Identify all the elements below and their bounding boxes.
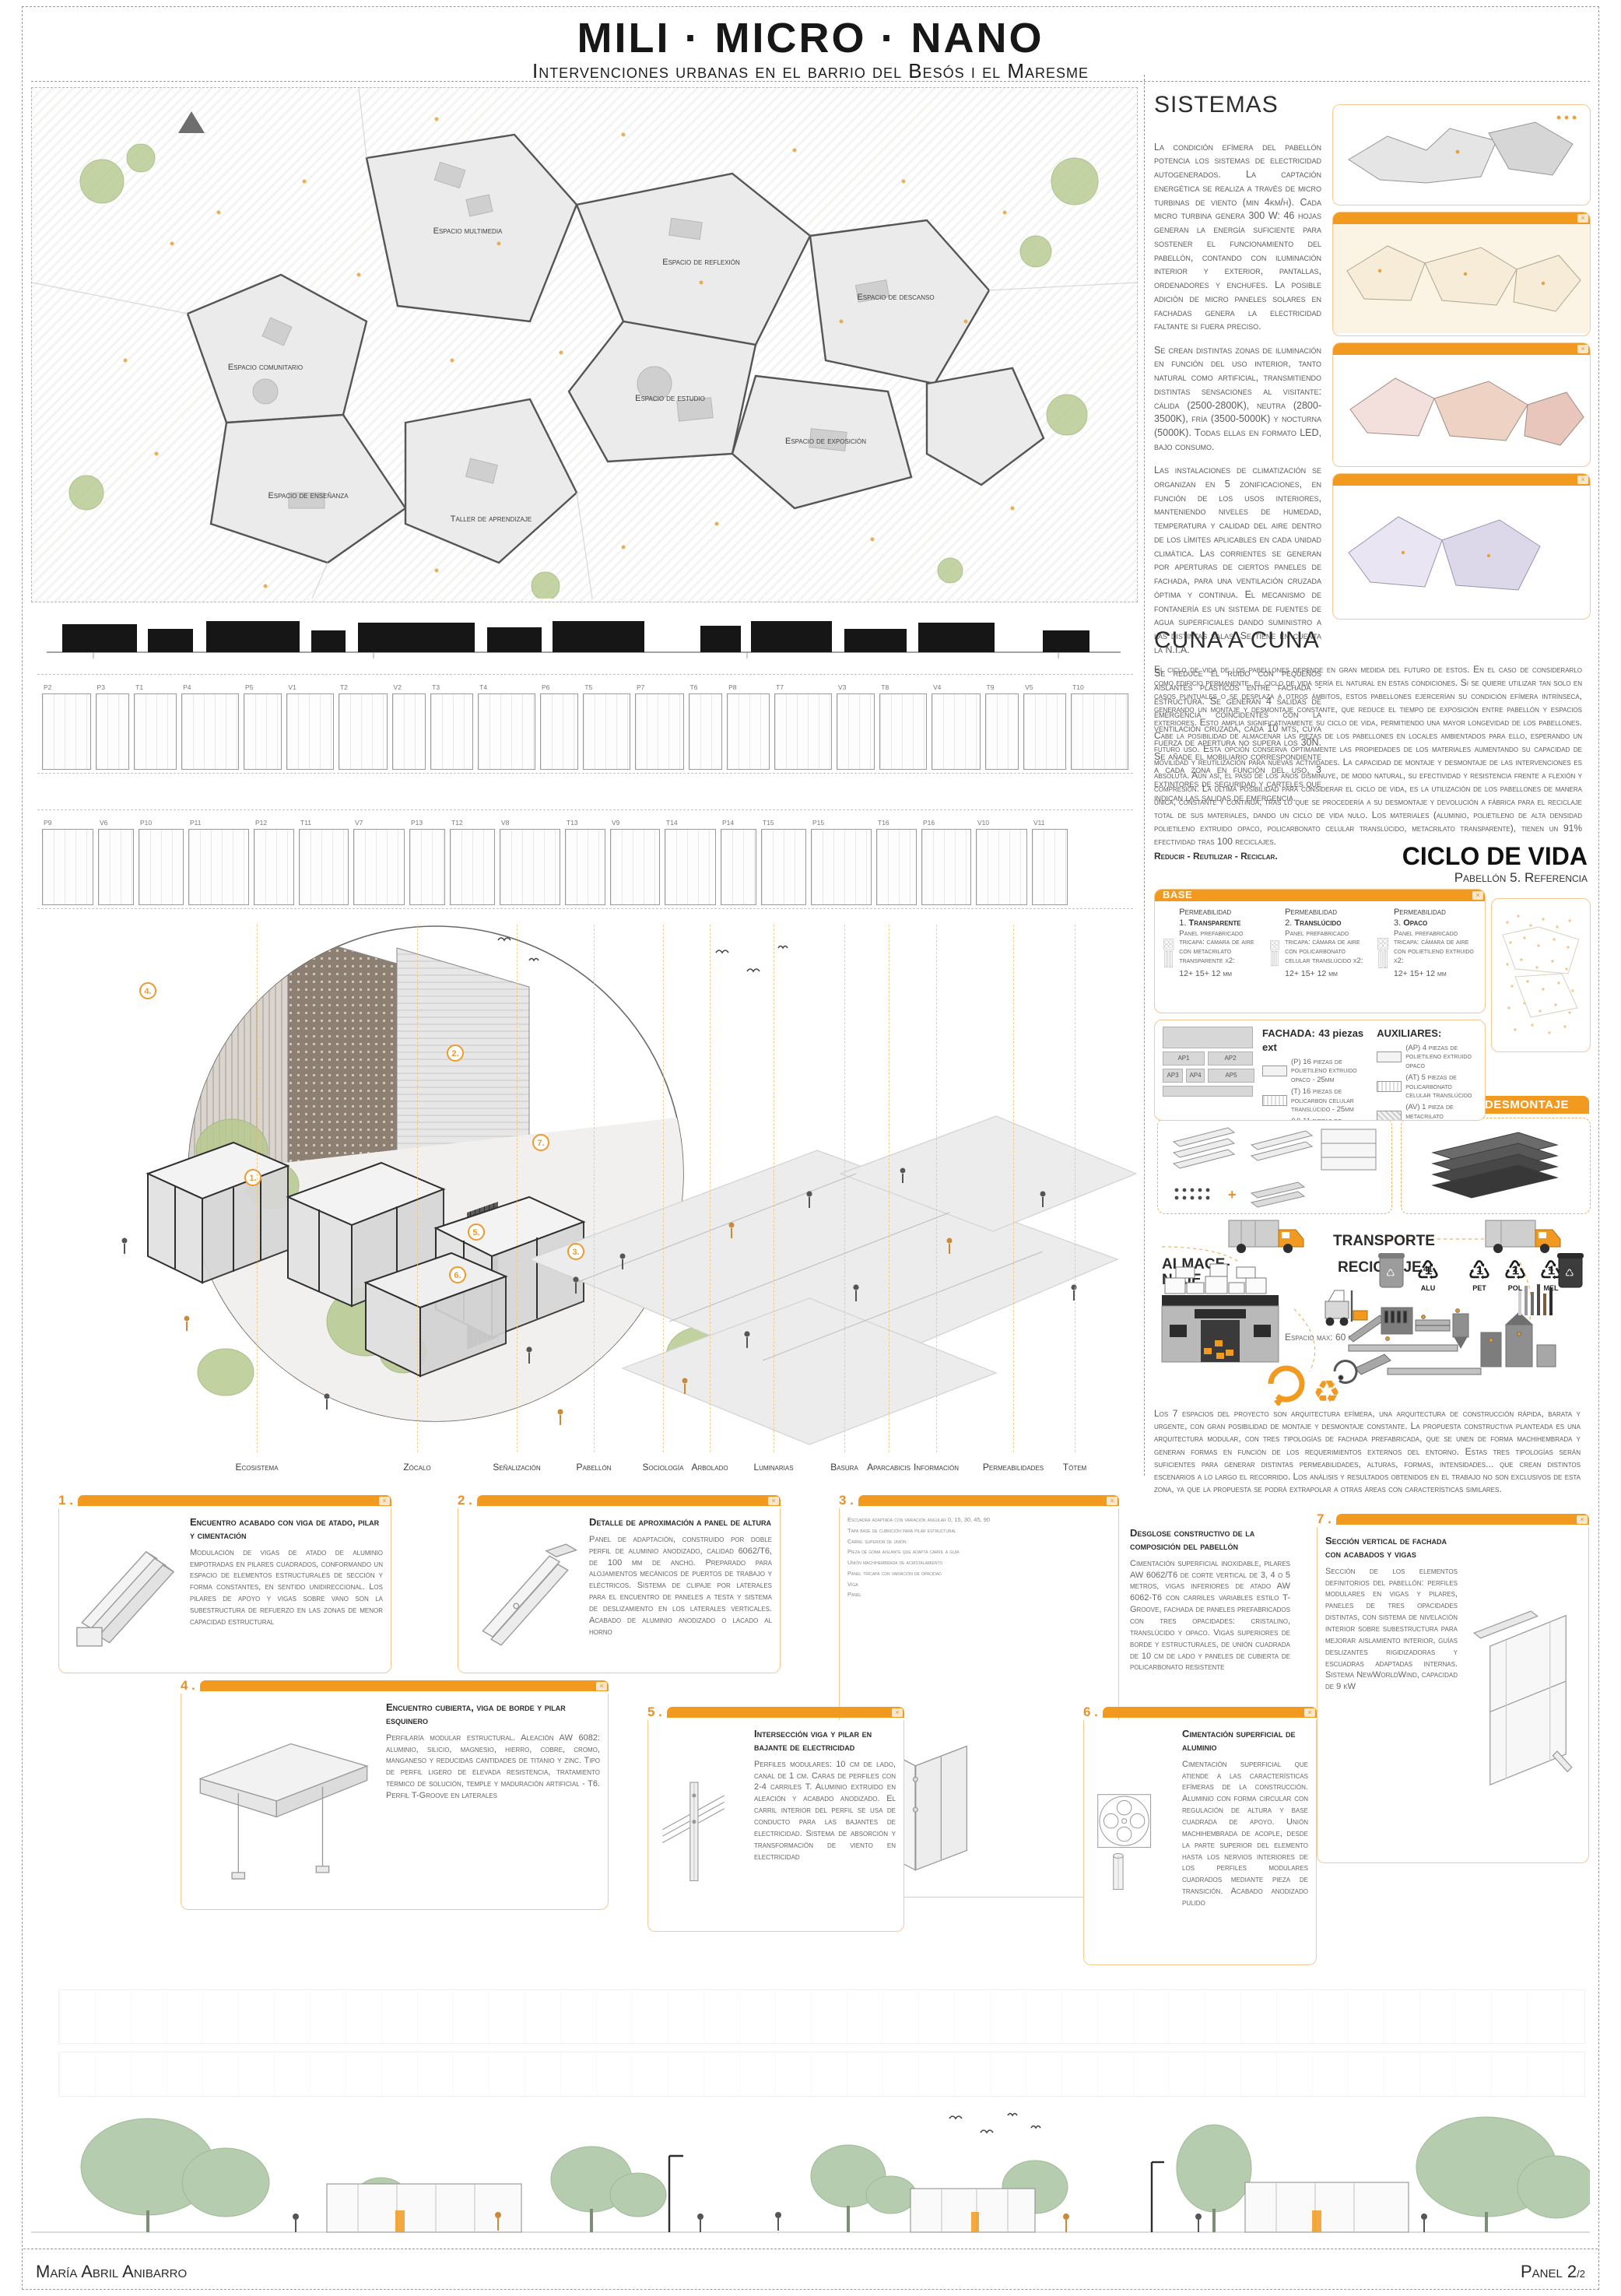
panel-piece: V5 (1023, 693, 1066, 770)
site-plan: Espacio multimediaEspacio de reflexiónEs… (31, 87, 1138, 602)
close-icon: × (892, 1708, 903, 1717)
svg-text:4: 4 (1549, 1265, 1554, 1274)
waste-bin-icon: ♺ (1557, 1253, 1584, 1287)
recycle-code: ♳1PET (1468, 1256, 1491, 1292)
forklift-icon (1325, 1290, 1367, 1325)
panel-piece: T1 (134, 693, 177, 770)
plan-space-label: Espacio de descanso (857, 293, 934, 304)
permeability-item: Permeabilidad1. TransparentePanel prefab… (1163, 908, 1263, 999)
detail-drawing (656, 1728, 748, 1923)
plan-north-triangle (178, 111, 205, 133)
detail-card-bar: × (858, 1495, 1119, 1506)
panel-piece: T16 (876, 829, 917, 905)
svg-text:2: 2 (1513, 1265, 1517, 1274)
category-guide-line (936, 925, 937, 1452)
panel-piece: P9 (42, 829, 93, 905)
close-icon: × (1577, 1515, 1588, 1524)
detail-annotations: Escuadra adaptada con variación angular … (847, 1516, 1110, 1599)
svg-text:6.: 6. (454, 1271, 461, 1280)
axon-category-label: Zócalo (403, 1462, 430, 1473)
column-divider (1144, 75, 1145, 1476)
panel-piece: P7 (635, 693, 684, 770)
detail-body: Panel de adaptación, construido por dobl… (589, 1534, 772, 1638)
axon-category-label: Arbolado (691, 1462, 728, 1473)
close-icon: × (379, 1497, 390, 1505)
detail-card-bar: × (200, 1680, 609, 1691)
panel-piece: V7 (353, 829, 405, 905)
axon-category-label: Permeabilidades (983, 1462, 1044, 1473)
detail-card-4: 4 .×Encuentro cubierta, viga de borde y … (181, 1678, 609, 1910)
detail-title: Detalle de aproximación a panel de altur… (589, 1516, 772, 1529)
plan-space-label: Espacio comunitario (228, 363, 303, 374)
axon-category-label: Tótem (1063, 1462, 1086, 1473)
recycling-machinery (1335, 1308, 1556, 1383)
base-card: BASE× Permeabilidad1. TransparentePanel … (1154, 889, 1486, 1013)
cuna-text: El ciclo de vida de los pabellones depen… (1154, 663, 1582, 863)
diagram-card-iluminacion: × (1332, 212, 1591, 336)
panel-piece: T13 (565, 829, 605, 905)
panel-piece: T3 (430, 693, 473, 770)
detail-external-text: Desglose constructivo de la composición … (1130, 1527, 1290, 1673)
category-guide-line (1013, 925, 1014, 1452)
birds (949, 2114, 1040, 2133)
desmontaje-pieces-box: + (1157, 1118, 1392, 1214)
panel-piece: V4 (932, 693, 981, 770)
close-icon: × (1472, 891, 1483, 900)
header-divider (31, 81, 1590, 82)
svg-text:ALU: ALU (1421, 1284, 1436, 1292)
plan-space-label: Espacio de estudio (635, 394, 705, 405)
svg-text:2.: 2. (451, 1049, 458, 1058)
recycle-code: ♳41ALU (1416, 1256, 1440, 1292)
detail-card-5: 5 .×Intersección viga y pilar en bajante… (647, 1704, 904, 1932)
detail-drawing (1092, 1728, 1176, 1957)
category-guide-line (710, 925, 711, 1452)
ciclo-title: CICLO DE VIDA (1402, 842, 1588, 871)
panel-piece: T5 (583, 693, 630, 770)
svg-text:41: 41 (1423, 1265, 1433, 1274)
panel-piece: V3 (837, 693, 875, 770)
panel-piece: T2 (339, 693, 388, 770)
recycle-codes: ♳41ALU♳1PET♳2POL♳4MEL (1416, 1256, 1563, 1292)
espacios-paragraph: Los 7 espacios del proyecto son arquitec… (1154, 1407, 1581, 1495)
detail-title: Cimentación superficial de aluminio (1182, 1728, 1308, 1754)
close-icon: × (1577, 345, 1588, 353)
sistemas-paragraph: Se crean distintas zonas de iluminación … (1154, 344, 1321, 455)
panel-piece: T15 (761, 829, 806, 905)
axonometric-illustration: 4.2.7.1.5.6.3. (31, 917, 1136, 1454)
detail-card-bar: × (477, 1495, 781, 1506)
cuna-heading: CUNA A CUNA (1154, 627, 1320, 654)
svg-text:♺: ♺ (1565, 1267, 1574, 1279)
category-guide-line (844, 925, 845, 1452)
detail-card-6: 6 .×Cimentación superficial de aluminioC… (1083, 1704, 1317, 1965)
panel-piece: V8 (500, 829, 560, 905)
logistics-infographic: TRANSPORTE ALMACE-NAJE RECICLAJE Espacio… (1154, 1216, 1590, 1406)
panel-piece: P13 (409, 829, 445, 905)
axon-category-label: Luminarias (753, 1462, 793, 1473)
panel-piece: T12 (450, 829, 495, 905)
espacio-max-label: Espacio max: 60 m² (1285, 1332, 1356, 1343)
panel-piece: V2 (392, 693, 426, 770)
panel-piece: P14 (721, 829, 756, 905)
svg-text:7.: 7. (537, 1139, 544, 1148)
panel-piece: P10 (139, 829, 184, 905)
axon-category-label: Ecosistema (235, 1462, 278, 1473)
detail-body: Modulación de vigas de atado de aluminio… (190, 1547, 383, 1628)
detail-number: 5 . (647, 1704, 662, 1720)
category-guide-line (517, 925, 518, 1452)
axon-category-label: Basura (830, 1462, 858, 1473)
site-plan-drawing (32, 88, 1137, 599)
panel-piece: V6 (98, 829, 134, 905)
fachada-legend-item: (T) 16 piezas de policarbon celular tran… (1262, 1087, 1369, 1114)
panel-piece: P15 (811, 829, 872, 905)
footer-author: María Abril Anibarro (36, 2262, 187, 2282)
recycle-code: ♳2POL (1503, 1256, 1527, 1292)
plan-space-label: Espacio de exposición (785, 437, 866, 448)
auxiliary-pieces-diagram: AP1AP2AP3AP4AP5 (1163, 1027, 1254, 1121)
fachada-card: AP1AP2AP3AP4AP5FACHADA: 43 piezas ext(P)… (1154, 1020, 1486, 1121)
detail-number: 7 . (1317, 1511, 1332, 1527)
panel-piece: T9 (985, 693, 1019, 770)
panel-piece: P8 (727, 693, 770, 770)
elevation-strip (47, 607, 1121, 662)
plan-space-label: Taller de aprendizaje (451, 514, 532, 525)
truck-icon (1486, 1220, 1560, 1253)
axon-category-label: Señalización (493, 1462, 540, 1473)
ghost-elevation-1 (58, 1989, 1585, 2044)
fachada-legend-item: (P) 16 piezas de polietileno extruido op… (1262, 1058, 1369, 1084)
warehouse-icon (1162, 1295, 1279, 1362)
truck-icon (1229, 1220, 1303, 1253)
plan-space-label: Espacio de enseñanza (268, 491, 348, 502)
panel-piece: V1 (286, 693, 334, 770)
desmontaje-stack-box (1401, 1118, 1591, 1214)
auxiliares-legend-item: (AT) 5 piezas de policarbonato celular t… (1377, 1073, 1477, 1100)
panel-piece: P11 (188, 829, 249, 905)
axon-category-label: Pabellón (577, 1462, 612, 1473)
detail-drawing (67, 1516, 184, 1665)
panel-piece: P5 (244, 693, 282, 770)
detail-drawing (466, 1516, 583, 1665)
category-guide-line (417, 925, 418, 1452)
detail-body: Perfiles modulares: 10 cm de lado, canal… (754, 1759, 896, 1863)
plan-space-label: Espacio de reflexión (662, 258, 740, 269)
close-icon: × (1577, 214, 1588, 223)
recycle-bin-icon: ♺ (1378, 1253, 1405, 1287)
permeability-item: Permeabilidad3. OpacoPanel prefabricado … (1377, 908, 1477, 999)
category-guide-line (774, 925, 774, 1452)
ghost-elevation-2 (58, 2052, 1585, 2097)
fachada-legend-item: (V) 11 piezas de metacrilato transparent… (1262, 1117, 1369, 1121)
street-elevation-illustration (31, 2101, 1590, 2245)
panel-piece: P2 (42, 693, 91, 770)
category-guide-line (889, 925, 889, 1452)
poster: MILI · MICRO · NANO Intervenciones urban… (0, 0, 1621, 2296)
close-icon: × (1577, 476, 1588, 484)
svg-text:♺: ♺ (1386, 1267, 1395, 1279)
detail-number: 6 . (1083, 1704, 1098, 1720)
panel-piece: T6 (689, 693, 723, 770)
detail-number: 2 . (458, 1493, 472, 1508)
diagram-card-energia (1332, 104, 1591, 205)
panel-piece: T11 (299, 829, 349, 905)
detail-card-bar: × (1336, 1514, 1589, 1525)
svg-text:5.: 5. (472, 1228, 479, 1238)
axon-category-label: Información (914, 1462, 959, 1473)
panel-piece: V11 (1032, 829, 1068, 905)
category-guide-line (663, 925, 664, 1452)
panel-piece: T8 (879, 693, 927, 770)
panel-piece: T7 (774, 693, 832, 770)
panel-piece: T4 (478, 693, 535, 770)
panel-piece: P3 (96, 693, 130, 770)
detail-title: Encuentro cubierta, viga de borde y pila… (386, 1701, 600, 1728)
detail-card-bar: × (78, 1495, 391, 1506)
axon-category-label: Sociología (643, 1462, 684, 1473)
detail-number: 4 . (181, 1678, 195, 1694)
panel-piece: P12 (254, 829, 294, 905)
svg-text:+: + (1228, 1187, 1237, 1202)
close-icon: × (768, 1497, 779, 1505)
diagram-card-acustica: × (1332, 473, 1591, 620)
piece-map-card (1491, 898, 1591, 1052)
ciclo-subtitle: Pabellón 5. Referencia (1454, 870, 1588, 886)
panel-piece: V9 (610, 829, 660, 905)
sistemas-heading: SISTEMAS (1154, 92, 1279, 118)
detail-title: Sección vertical de fachada con acabados… (1325, 1535, 1458, 1561)
detail-card-bar: × (1103, 1707, 1317, 1718)
panel-piece: V10 (976, 829, 1027, 905)
auxiliares-legend-item: (AV) 1 pieza de metacrilato transparente (1377, 1103, 1477, 1121)
transporte-label: TRANSPORTE (1333, 1233, 1435, 1249)
detail-number: 3 . (839, 1493, 854, 1508)
panel-pieces-row-2: P9V6P10P11P12T11V7P13T12V8T13V9T14P14T15… (37, 809, 1133, 909)
close-icon: × (1107, 1497, 1118, 1505)
svg-text:1.: 1. (249, 1174, 256, 1183)
detail-number: 1 . (58, 1493, 73, 1508)
panel-pieces-row-1: P2P3T1P4P5V1T2V2T3T4P6T5P7T6P8T7V3T8V4T9… (37, 674, 1133, 774)
base-card-title: BASE (1163, 889, 1192, 900)
panel-piece: T10 (1071, 693, 1128, 770)
category-guide-line (257, 925, 258, 1452)
detail-body: Cimentación superficial que atiende a la… (1182, 1759, 1308, 1909)
diagram-card-climatizacion: × (1332, 342, 1591, 467)
cycle-arrows-icon (1271, 1368, 1302, 1406)
plan-space-label: Espacio multimedia (433, 226, 503, 237)
panel-piece: P6 (540, 693, 578, 770)
category-guide-line (1075, 925, 1075, 1452)
panel-piece: T14 (665, 829, 716, 905)
detail-card-2: 2 .×Detalle de aproximación a panel de a… (458, 1493, 781, 1673)
footer-panel: Panel 2/2 (1521, 2262, 1585, 2282)
category-guide-line (594, 925, 595, 1452)
panel-piece: P4 (181, 693, 239, 770)
permeability-item: Permeabilidad2. TranslúcidoPanel prefabr… (1269, 908, 1370, 999)
close-icon: × (596, 1682, 607, 1690)
detail-body: Perfilaría modular estructural. Aleación… (386, 1733, 600, 1802)
detail-card-bar: × (667, 1707, 904, 1718)
detail-card-7: 7 .×Sección vertical de fachada con acab… (1317, 1511, 1589, 1863)
axon-category-label: Aparcabicis (867, 1462, 910, 1473)
svg-text:PET: PET (1472, 1284, 1486, 1292)
panel-piece: P16 (921, 829, 971, 905)
svg-text:3.: 3. (572, 1248, 579, 1257)
page-title: MILI · MICRO · NANO (0, 14, 1621, 62)
detail-drawing (1464, 1535, 1581, 1855)
detail-title: Encuentro acabado con viga de atado, pil… (190, 1516, 383, 1543)
footer-divider (23, 2249, 1598, 2249)
svg-text:4.: 4. (144, 987, 151, 996)
detail-card-1: 1 .×Encuentro acabado con viga de atado,… (58, 1493, 391, 1673)
svg-text:1: 1 (1477, 1265, 1482, 1274)
auxiliares-legend-item: (AP) 4 piezas de polietileno extruido op… (1377, 1044, 1477, 1070)
detail-title: Intersección viga y pilar en bajante de … (754, 1728, 896, 1754)
recycle-icon: ♻ (1313, 1375, 1341, 1406)
detail-drawing (189, 1701, 380, 1901)
detail-body: Sección de los elementos definitorios de… (1325, 1566, 1458, 1693)
page-subtitle: Intervenciones urbanas en el barrio del … (0, 59, 1621, 83)
sistemas-paragraph: La condición efímera del pabellón potenc… (1154, 141, 1321, 335)
close-icon: × (1304, 1708, 1315, 1717)
